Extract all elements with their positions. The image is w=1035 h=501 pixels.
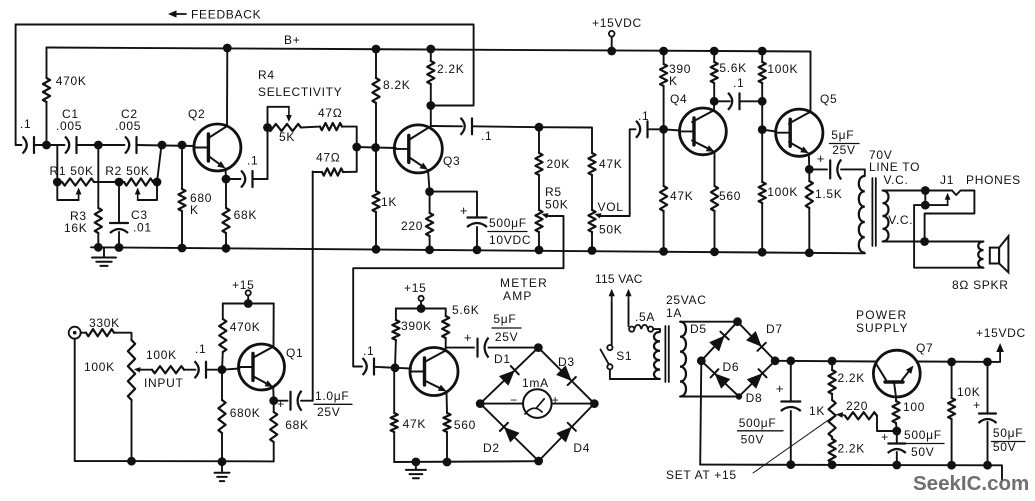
- svg-text:METER: METER: [500, 276, 548, 290]
- svg-text:.1: .1: [247, 154, 258, 168]
- svg-text:1K: 1K: [381, 195, 397, 209]
- svg-text:D7: D7: [766, 322, 783, 336]
- svg-text:100K: 100K: [146, 348, 177, 362]
- svg-text:FEEDBACK: FEEDBACK: [191, 8, 261, 22]
- svg-text:470K: 470K: [56, 74, 87, 88]
- svg-text:D6: D6: [723, 360, 740, 374]
- svg-text:LINE TO: LINE TO: [869, 160, 920, 174]
- svg-text:.1: .1: [481, 129, 492, 143]
- svg-text:50V: 50V: [993, 440, 1016, 454]
- svg-text:25V: 25V: [832, 143, 855, 157]
- svg-text:B+: B+: [284, 33, 300, 47]
- svg-text:+15VDC: +15VDC: [592, 16, 642, 30]
- svg-text:10VDC: 10VDC: [489, 233, 531, 247]
- svg-text:1K: 1K: [809, 404, 825, 418]
- svg-text:−: −: [510, 393, 518, 407]
- svg-text:R1 50K: R1 50K: [50, 164, 94, 178]
- svg-text:SELECTIVITY: SELECTIVITY: [258, 85, 342, 99]
- svg-text:Q4: Q4: [670, 92, 687, 106]
- svg-text:330K: 330K: [89, 316, 120, 330]
- svg-text:220: 220: [401, 219, 423, 233]
- svg-text:SeekIC.com: SeekIC.com: [913, 472, 1029, 495]
- svg-text:Q7: Q7: [916, 341, 933, 355]
- svg-text:+15: +15: [232, 278, 254, 292]
- svg-text:50V: 50V: [741, 433, 764, 447]
- svg-text:D1: D1: [494, 352, 511, 366]
- svg-text:+: +: [817, 151, 825, 166]
- svg-text:500μF: 500μF: [904, 428, 942, 442]
- svg-text:10K: 10K: [957, 385, 980, 399]
- svg-text:100K: 100K: [767, 62, 798, 76]
- svg-text:S1: S1: [616, 349, 632, 363]
- svg-text:25VAC: 25VAC: [666, 293, 707, 307]
- svg-text:5μF: 5μF: [831, 128, 854, 142]
- svg-text:Q5: Q5: [820, 92, 837, 106]
- svg-text:+: +: [464, 330, 472, 345]
- svg-text:100K: 100K: [84, 360, 115, 374]
- svg-text:5μF: 5μF: [493, 312, 516, 326]
- svg-text:16K: 16K: [64, 221, 87, 235]
- svg-text:VOL: VOL: [598, 200, 624, 214]
- svg-text:.1: .1: [733, 76, 744, 90]
- svg-text:K: K: [669, 74, 678, 88]
- svg-text:D2: D2: [483, 441, 500, 455]
- svg-text:680K: 680K: [230, 406, 261, 420]
- svg-text:5.6K: 5.6K: [719, 61, 747, 75]
- svg-text:R2 50K: R2 50K: [105, 164, 149, 178]
- svg-text:V.C.: V.C.: [884, 173, 909, 187]
- svg-text:J1: J1: [940, 173, 954, 187]
- svg-text:47Ω: 47Ω: [318, 106, 342, 120]
- svg-text:100: 100: [903, 400, 925, 414]
- svg-text:POWER: POWER: [856, 308, 907, 322]
- svg-text:.005: .005: [56, 119, 82, 133]
- svg-text:470K: 470K: [230, 320, 261, 334]
- svg-text:500μF: 500μF: [489, 216, 527, 230]
- svg-text:.1: .1: [195, 342, 206, 356]
- svg-text:2.2K: 2.2K: [838, 442, 866, 456]
- svg-text:50V: 50V: [911, 445, 934, 459]
- svg-text:1.0μF: 1.0μF: [315, 389, 349, 403]
- svg-text:2.2K: 2.2K: [838, 371, 866, 385]
- svg-text:V.C.: V.C.: [888, 213, 913, 227]
- svg-text:47K: 47K: [599, 157, 622, 171]
- svg-text:INPUT: INPUT: [144, 376, 184, 390]
- svg-text:1.5K: 1.5K: [815, 187, 843, 201]
- svg-text:47Ω: 47Ω: [316, 151, 340, 165]
- svg-text:.1: .1: [638, 109, 649, 123]
- svg-text:.005: .005: [115, 119, 141, 133]
- svg-text:+15VDC: +15VDC: [976, 326, 1026, 340]
- svg-text:+: +: [973, 398, 981, 412]
- svg-text:D4: D4: [573, 441, 590, 455]
- svg-text:+: +: [776, 381, 784, 396]
- svg-text:50K: 50K: [599, 223, 622, 237]
- svg-text:2.2K: 2.2K: [437, 62, 465, 76]
- svg-text:50K: 50K: [545, 198, 568, 212]
- svg-text:.1: .1: [20, 117, 31, 131]
- svg-text:.01: .01: [133, 221, 152, 235]
- svg-text:25V: 25V: [495, 330, 518, 344]
- svg-text:68K: 68K: [234, 208, 257, 222]
- svg-text:AMP: AMP: [503, 289, 533, 303]
- svg-text:5.6K: 5.6K: [452, 303, 480, 317]
- svg-text:20K: 20K: [547, 157, 570, 171]
- svg-text:390K: 390K: [401, 319, 432, 333]
- svg-text:560: 560: [719, 189, 741, 203]
- svg-text:+: +: [552, 393, 560, 407]
- svg-text:+: +: [460, 203, 468, 218]
- svg-text:Q1: Q1: [286, 346, 303, 360]
- svg-text:8Ω SPKR: 8Ω SPKR: [952, 278, 1009, 292]
- svg-text:560: 560: [454, 418, 476, 432]
- svg-text:8.2K: 8.2K: [383, 78, 411, 92]
- svg-text:50μF: 50μF: [993, 426, 1023, 440]
- svg-text:+: +: [881, 430, 889, 444]
- svg-text:1A: 1A: [666, 306, 682, 320]
- svg-text:D5: D5: [690, 322, 707, 336]
- svg-text:100K: 100K: [767, 185, 798, 199]
- svg-text:D3: D3: [558, 355, 575, 369]
- svg-text:SUPPLY: SUPPLY: [856, 321, 908, 335]
- svg-text:220: 220: [846, 399, 868, 413]
- svg-text:+: +: [277, 397, 285, 411]
- svg-text:1mA: 1mA: [522, 376, 549, 390]
- svg-text:Q3: Q3: [443, 154, 460, 168]
- svg-text:115 VAC: 115 VAC: [595, 272, 643, 286]
- svg-text:25V: 25V: [317, 405, 340, 419]
- svg-text:SET AT +15: SET AT +15: [666, 468, 737, 482]
- svg-text:Q2: Q2: [188, 107, 205, 121]
- svg-text:PHONES: PHONES: [966, 173, 1021, 187]
- svg-text:.5A: .5A: [635, 310, 655, 324]
- svg-text:68K: 68K: [285, 418, 308, 432]
- svg-text:5K: 5K: [279, 130, 295, 144]
- svg-text:D8: D8: [746, 391, 763, 405]
- svg-text:+15: +15: [404, 281, 426, 295]
- svg-text:47K: 47K: [403, 417, 426, 431]
- svg-text:K: K: [190, 203, 199, 217]
- svg-text:R4: R4: [258, 68, 275, 82]
- svg-text:.1: .1: [363, 344, 374, 358]
- svg-text:47K: 47K: [670, 189, 693, 203]
- svg-text:500μF: 500μF: [739, 416, 777, 430]
